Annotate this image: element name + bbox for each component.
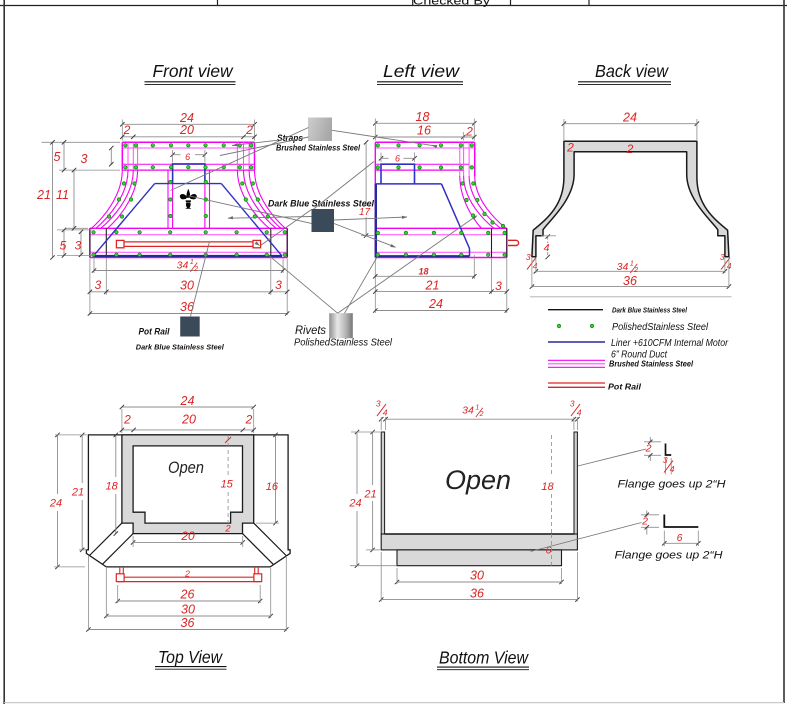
svg-text:6: 6: [677, 532, 683, 544]
svg-text:Brushed Stainless Steel: Brushed Stainless Steel: [609, 360, 694, 369]
svg-text:2: 2: [245, 413, 253, 427]
svg-text:2: 2: [566, 141, 574, 155]
svg-text:Dark Blue Stainless Steel: Dark Blue Stainless Steel: [268, 199, 374, 210]
svg-text:Liner +610CFM Internal Motor: Liner +610CFM Internal Motor: [611, 337, 728, 349]
svg-text:4: 4: [544, 242, 550, 254]
svg-text:Open: Open: [168, 458, 204, 477]
svg-text:20: 20: [181, 412, 196, 426]
svg-text:36: 36: [470, 586, 484, 600]
svg-text:4: 4: [577, 408, 582, 418]
svg-text:2: 2: [626, 142, 634, 156]
svg-text:24: 24: [348, 498, 361, 510]
svg-text:3: 3: [526, 252, 531, 262]
svg-text:21: 21: [363, 489, 376, 501]
svg-text:15: 15: [221, 478, 234, 490]
svg-text:3: 3: [663, 455, 668, 465]
svg-text:3: 3: [95, 278, 102, 292]
svg-text:18: 18: [416, 110, 430, 124]
svg-text:Bottom View: Bottom View: [439, 648, 529, 668]
svg-text:3: 3: [275, 278, 282, 292]
svg-text:34: 34: [462, 405, 474, 417]
svg-text:16: 16: [417, 124, 431, 138]
svg-text:24: 24: [180, 394, 195, 408]
svg-text:30: 30: [180, 278, 194, 292]
svg-text:26: 26: [180, 588, 195, 602]
svg-text:18: 18: [105, 480, 118, 492]
svg-text:2: 2: [641, 516, 648, 528]
svg-text:36: 36: [623, 274, 637, 288]
svg-text:Flange goes up 2“H: Flange goes up 2“H: [618, 479, 726, 491]
svg-text:PolishedStainless Steel: PolishedStainless Steel: [612, 321, 709, 333]
svg-text:Open: Open: [445, 465, 511, 495]
svg-text:5: 5: [54, 150, 61, 164]
svg-text:2: 2: [245, 123, 253, 137]
svg-text:21: 21: [425, 278, 440, 292]
svg-text:4: 4: [533, 261, 538, 271]
svg-text:2: 2: [224, 524, 231, 535]
svg-text:34: 34: [617, 261, 629, 273]
svg-text:2: 2: [184, 569, 190, 579]
svg-text:Pot Rail: Pot Rail: [139, 327, 170, 337]
svg-text:24: 24: [49, 498, 62, 510]
svg-text:21: 21: [71, 487, 84, 499]
svg-text:Rivets: Rivets: [295, 325, 326, 337]
svg-text:3: 3: [81, 152, 88, 166]
svg-text:30: 30: [181, 603, 195, 617]
svg-text:6: 6: [395, 154, 400, 164]
svg-text:18: 18: [418, 266, 428, 276]
svg-text:2: 2: [465, 125, 473, 139]
svg-text:3: 3: [75, 239, 82, 253]
svg-text:20: 20: [179, 123, 194, 137]
svg-text:Pot Rail: Pot Rail: [608, 382, 642, 392]
svg-text:2: 2: [123, 123, 131, 137]
svg-text:30: 30: [470, 569, 484, 583]
svg-text:3: 3: [720, 252, 725, 262]
svg-text:34: 34: [177, 259, 189, 271]
svg-text:PolishedStainless Steel: PolishedStainless Steel: [294, 337, 393, 349]
svg-text:Top View: Top View: [158, 647, 223, 667]
svg-text:24: 24: [428, 297, 443, 311]
svg-text:2: 2: [645, 443, 652, 455]
svg-text:2: 2: [123, 413, 131, 427]
svg-text:Dark Blue Stainless Steel: Dark Blue Stainless Steel: [612, 306, 688, 315]
svg-text:3: 3: [376, 398, 381, 408]
svg-text:4: 4: [383, 408, 388, 418]
svg-text:4: 4: [670, 464, 675, 474]
svg-text:36: 36: [181, 616, 195, 630]
svg-text:16: 16: [266, 481, 279, 493]
svg-text:Front view: Front view: [153, 61, 234, 81]
svg-text:Dark Blue Stainless Steel: Dark Blue Stainless Steel: [136, 343, 225, 352]
svg-text:5: 5: [60, 239, 67, 253]
svg-text:20: 20: [180, 529, 195, 543]
svg-text:Brushed Stainless Steel: Brushed Stainless Steel: [276, 144, 361, 153]
svg-text:21: 21: [36, 188, 51, 202]
svg-text:Left view: Left view: [383, 61, 460, 81]
svg-text:24: 24: [622, 110, 637, 124]
svg-text:11: 11: [56, 188, 69, 202]
svg-text:18: 18: [541, 481, 554, 493]
svg-text:Flange goes up 2“H: Flange goes up 2“H: [615, 550, 723, 562]
svg-text:Back view: Back view: [595, 61, 669, 81]
svg-text:3: 3: [495, 279, 502, 293]
svg-text:6: 6: [185, 152, 190, 162]
svg-text:Checked By: Checked By: [413, 0, 491, 8]
svg-text:3: 3: [570, 398, 575, 408]
